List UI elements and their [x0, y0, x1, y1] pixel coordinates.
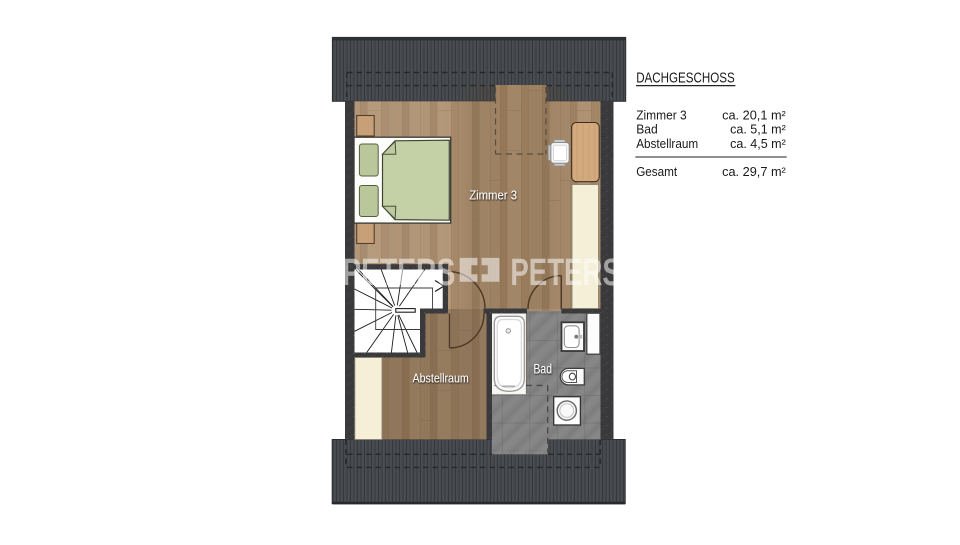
svg-text:PETERS: PETERS	[342, 252, 455, 294]
svg-text:Gesamt: Gesamt	[636, 164, 677, 179]
svg-text:Bad: Bad	[636, 122, 658, 137]
svg-text:Abstellraum: Abstellraum	[413, 371, 469, 385]
svg-text:Zimmer 3: Zimmer 3	[636, 108, 687, 123]
svg-text:ca. 5,1 m²: ca. 5,1 m²	[730, 122, 786, 137]
svg-text:Zimmer 3: Zimmer 3	[469, 188, 517, 203]
svg-text:ca. 29,7 m²: ca. 29,7 m²	[722, 164, 786, 179]
svg-text:ca. 4,5 m²: ca. 4,5 m²	[730, 136, 786, 151]
svg-text:PETERS: PETERS	[510, 252, 620, 294]
svg-text:Bad: Bad	[534, 361, 553, 377]
svg-text:DACHGESCHOSS: DACHGESCHOSS	[636, 70, 735, 86]
svg-text:Abstellraum: Abstellraum	[636, 136, 698, 151]
svg-text:ca. 20,1 m²: ca. 20,1 m²	[722, 108, 786, 123]
